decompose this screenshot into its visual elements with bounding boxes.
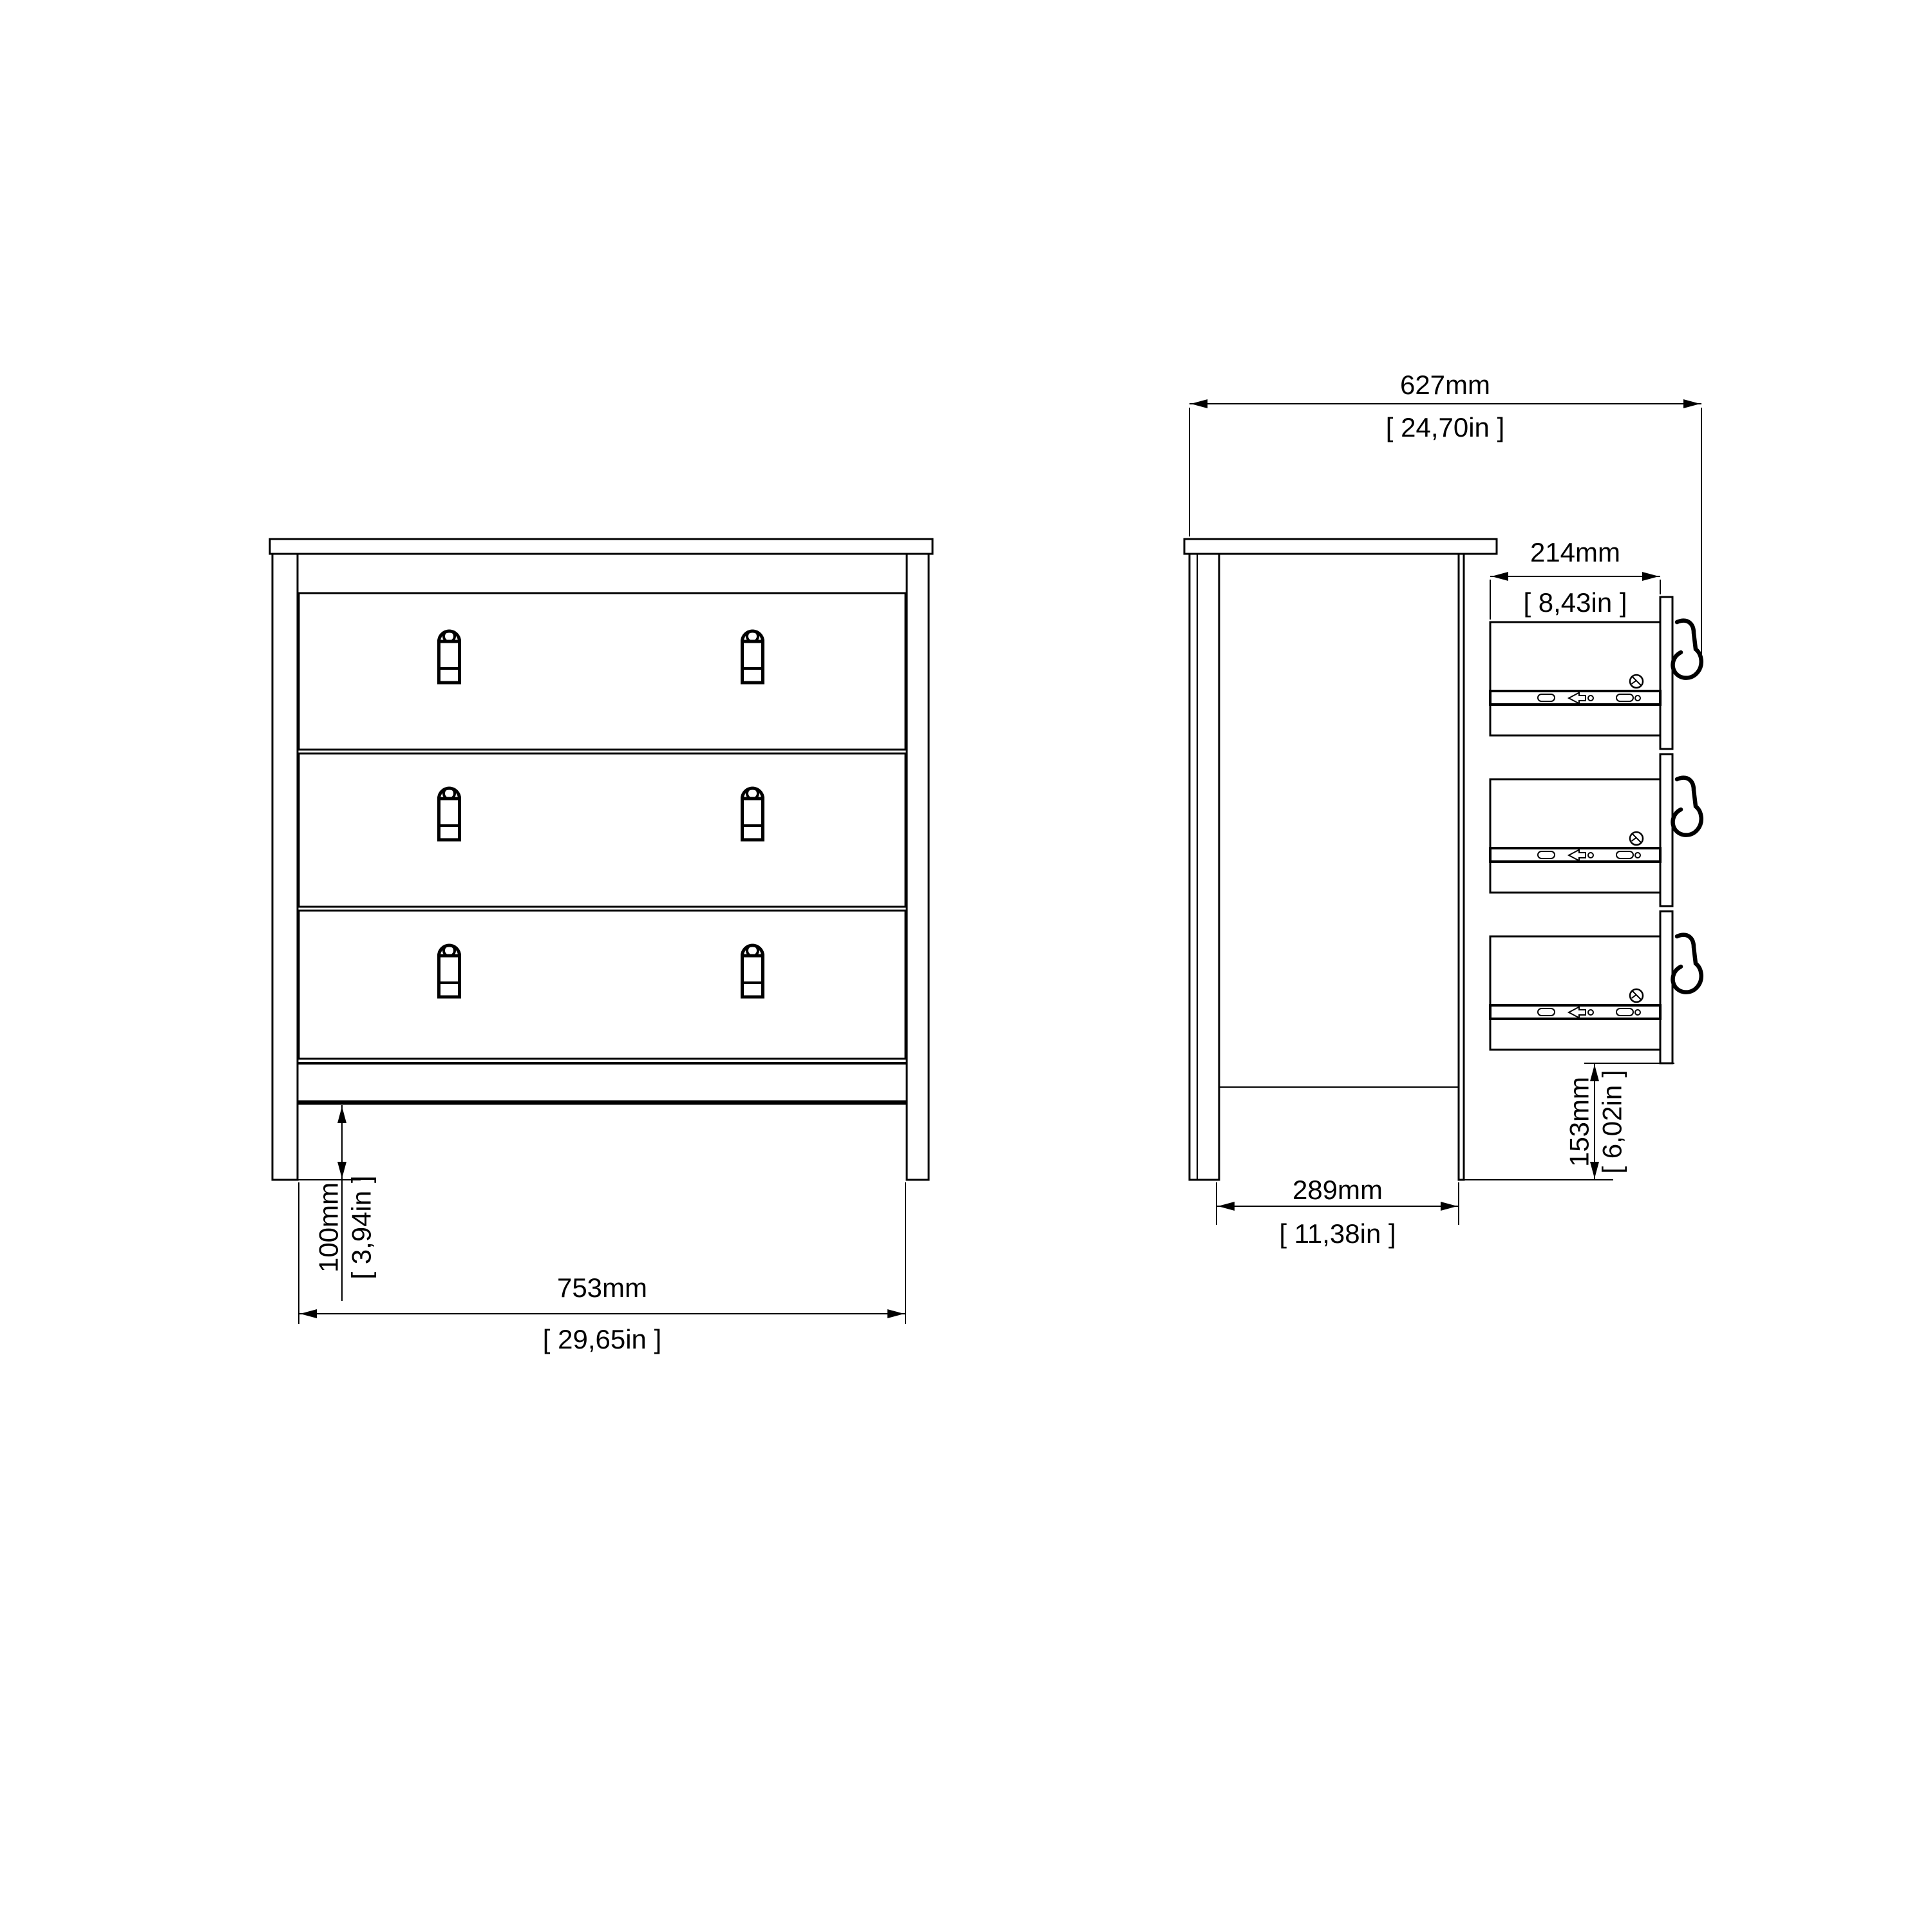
drawer-handle	[743, 945, 763, 998]
side-front-edge	[1459, 554, 1464, 1180]
arrow-right-icon	[1683, 399, 1700, 408]
arrow-left-icon	[1492, 572, 1508, 581]
dimension-label-mm: 753mm	[557, 1273, 647, 1303]
drawer-handle	[743, 631, 763, 683]
side-back-leg	[1189, 554, 1219, 1180]
dimension-side-drawer-front-height: 153mm [ 6,02in ]	[1564, 1063, 1675, 1180]
drawing-sheet: 100mm [ 3,94in ] 753mm [ 29,65in ] 627mm…	[0, 0, 1932, 1932]
drawer-handle	[439, 631, 460, 683]
side-top-panel	[1184, 539, 1497, 554]
arrow-right-icon	[887, 1309, 904, 1318]
front-right-leg	[907, 554, 929, 1180]
dimension-label-inches: [ 8,43in ]	[1523, 587, 1627, 618]
dimension-front-width: 753mm [ 29,65in ]	[299, 1182, 905, 1354]
side-drawer-unit-1	[1490, 597, 1701, 749]
drawer-handle	[439, 945, 460, 998]
dimension-label-inches: [ 29,65in ]	[543, 1324, 661, 1354]
side-drawer-unit-3	[1490, 911, 1701, 1063]
technical-drawing: 100mm [ 3,94in ] 753mm [ 29,65in ] 627mm…	[0, 0, 1932, 1932]
dimension-label-mm: 627mm	[1400, 370, 1490, 400]
dimension-label-inches: [ 24,70in ]	[1386, 412, 1504, 442]
drawer-front-1	[299, 593, 905, 750]
front-top-panel	[270, 539, 933, 554]
drawer-front-2	[299, 753, 905, 907]
arrow-left-icon	[1218, 1202, 1235, 1211]
dimension-front-plinth-height: 100mm [ 3,94in ]	[314, 1105, 377, 1301]
arrow-down-icon	[337, 1162, 346, 1179]
dimension-label-inches: [ 11,38in ]	[1279, 1218, 1396, 1249]
dimension-side-drawer-extension: 214mm [ 8,43in ]	[1490, 537, 1660, 620]
dimension-side-carcass-depth: 289mm [ 11,38in ]	[1217, 1175, 1459, 1249]
drawer-handle	[439, 788, 460, 840]
drawer-front-3	[299, 911, 905, 1059]
drawer-handle	[743, 788, 763, 840]
dimension-label-inches: [ 6,02in ]	[1597, 1070, 1627, 1173]
dimension-label-mm: 100mm	[314, 1182, 344, 1273]
dimension-label-inches: [ 3,94in ]	[346, 1175, 377, 1279]
dimension-side-total-depth: 627mm [ 24,70in ]	[1189, 370, 1701, 663]
arrow-right-icon	[1642, 572, 1659, 581]
front-left-leg	[272, 554, 298, 1180]
arrow-up-icon	[337, 1106, 346, 1123]
arrow-left-icon	[300, 1309, 317, 1318]
arrow-left-icon	[1191, 399, 1207, 408]
side-drawer-unit-2	[1490, 754, 1701, 906]
dimension-label-mm: 214mm	[1530, 537, 1620, 567]
arrow-right-icon	[1441, 1202, 1457, 1211]
dimension-label-mm: 289mm	[1293, 1175, 1383, 1205]
front-view	[270, 539, 933, 1180]
dimension-label-mm: 153mm	[1564, 1077, 1595, 1167]
